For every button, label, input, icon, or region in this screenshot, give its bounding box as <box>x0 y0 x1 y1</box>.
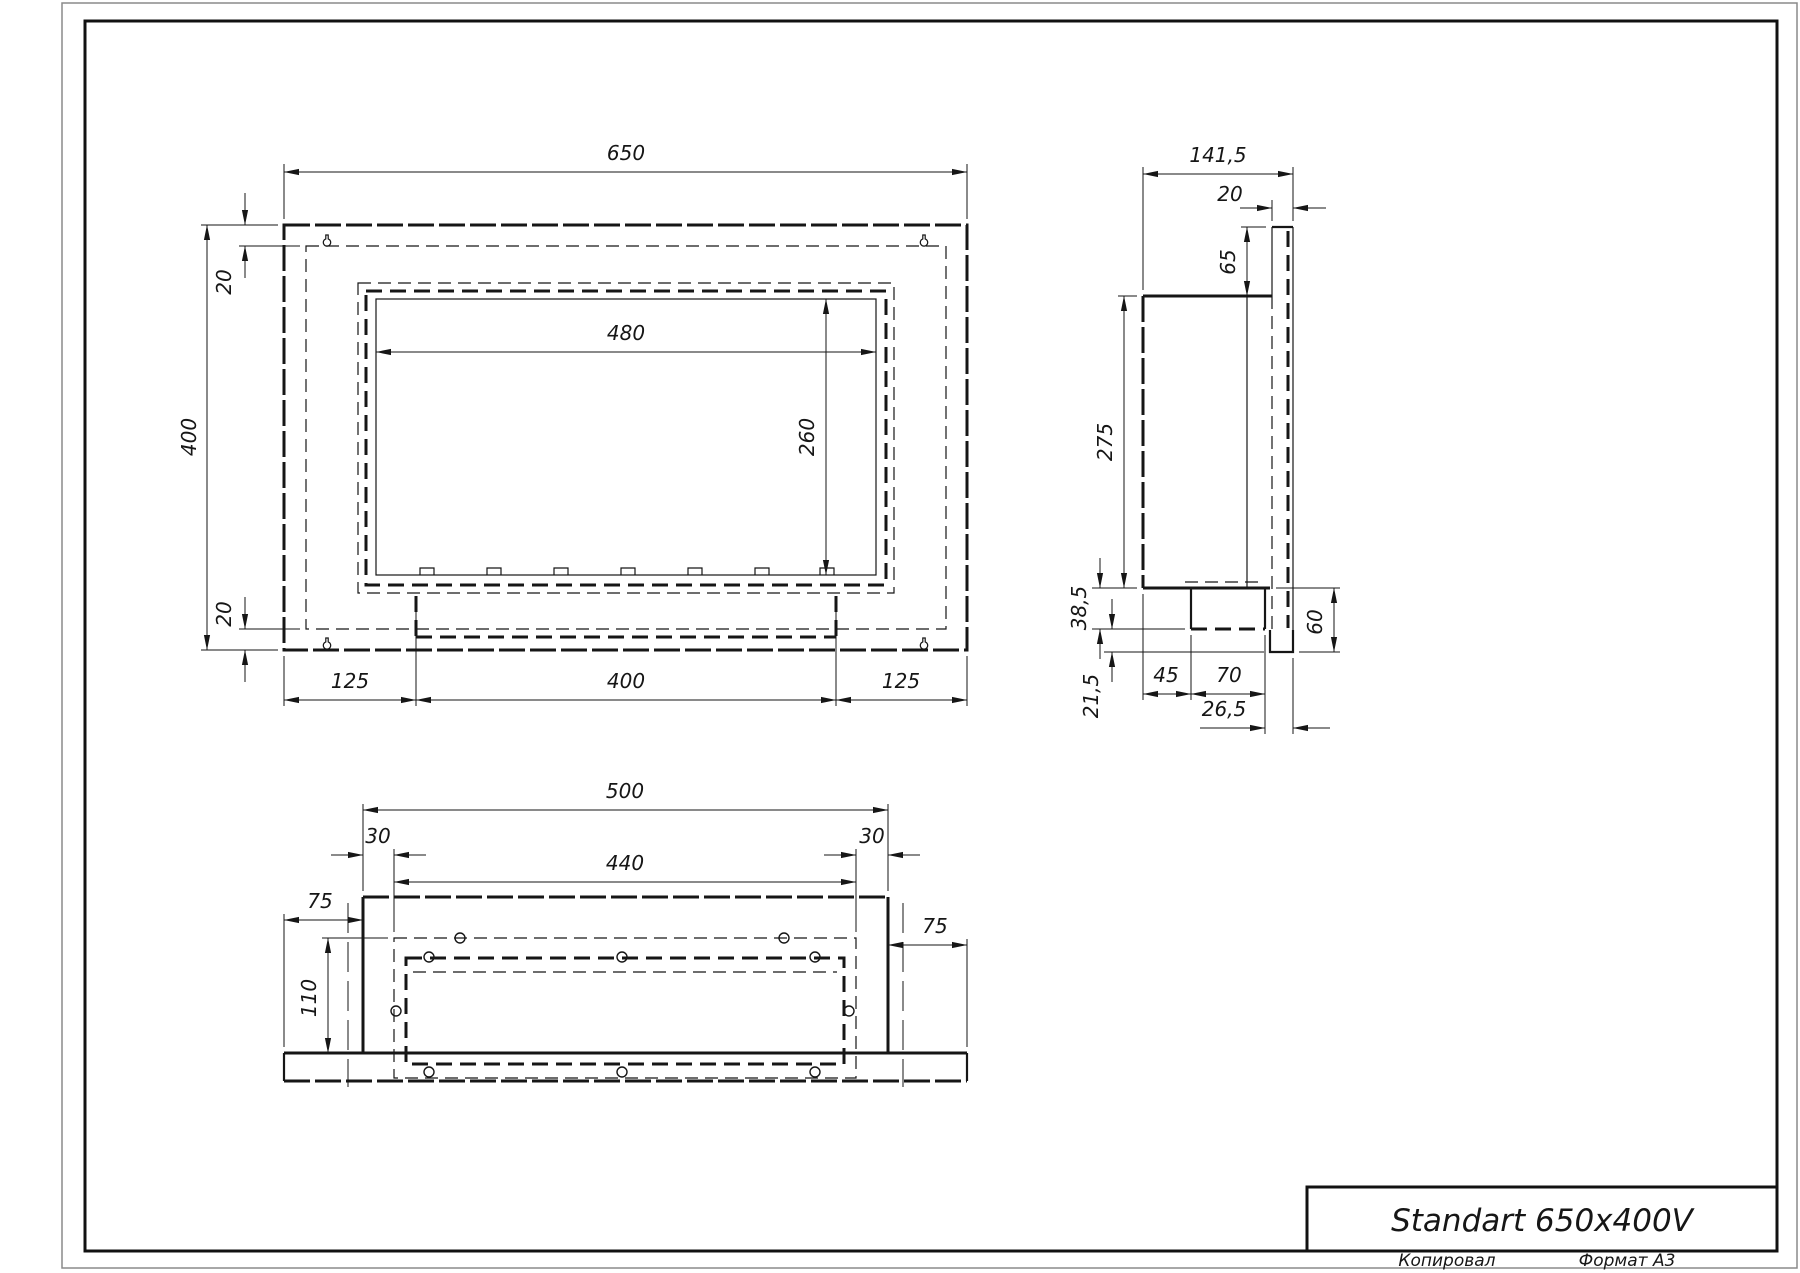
dim-front-bottom-center: 400 <box>607 669 645 693</box>
drawing-frame <box>62 3 1797 1268</box>
dim-side-foot-width: 70 <box>1216 663 1241 687</box>
dim-front-height: 400 <box>177 418 201 456</box>
front-view: 650 400 20 20 480 260 <box>177 141 967 706</box>
dim-side-drop-upper: 38,5 <box>1067 586 1091 631</box>
dim-bottom-depth: 110 <box>297 979 321 1017</box>
dim-bottom-flange-right: 75 <box>922 914 947 938</box>
technical-drawing: 650 400 20 20 480 260 <box>0 0 1800 1273</box>
dim-side-depth-total: 141,5 <box>1189 143 1246 167</box>
dim-side-drop-lower: 21,5 <box>1079 674 1103 719</box>
side-view-dimensions: 141,5 20 65 275 38,5 21 <box>1067 143 1340 734</box>
dim-side-foot-to-edge: 26,5 <box>1202 697 1247 721</box>
mounting-holes <box>391 933 854 1077</box>
format-label: Формат А3 <box>1579 1251 1676 1271</box>
dim-front-opening-width: 480 <box>607 321 645 345</box>
keyhole-hanger-icon <box>323 235 927 649</box>
dim-side-foot-offset-left: 45 <box>1153 663 1178 687</box>
drawing-title: Standart 650x400V <box>1391 1203 1696 1239</box>
bottom-view-dimensions: 500 30 440 30 75 75 110 <box>284 779 967 1053</box>
bottom-view: 500 30 440 30 75 75 110 <box>284 779 967 1087</box>
dim-bottom-housing-width: 500 <box>606 779 644 803</box>
dim-side-flange-depth: 20 <box>1217 182 1242 206</box>
dim-front-top-offset: 20 <box>212 269 236 294</box>
dim-front-bottom-left: 125 <box>331 669 369 693</box>
dim-front-opening-height: 260 <box>795 418 819 456</box>
copied-by-label: Копировал <box>1398 1251 1495 1271</box>
dim-side-body-height: 275 <box>1093 423 1117 461</box>
drawing-sheet: 650 400 20 20 480 260 <box>0 0 1800 1273</box>
dim-bottom-inset-right: 30 <box>859 824 884 848</box>
dim-front-bottom-right: 125 <box>882 669 920 693</box>
dim-front-width: 650 <box>607 141 645 165</box>
dim-side-flange-above: 65 <box>1216 249 1240 274</box>
dim-front-bottom-offset: 20 <box>212 601 236 626</box>
dim-bottom-flange-left: 75 <box>307 889 332 913</box>
dim-side-flange-below: 60 <box>1303 609 1327 634</box>
dim-bottom-tray-width: 440 <box>606 851 644 875</box>
side-view: 141,5 20 65 275 38,5 21 <box>1067 143 1340 734</box>
title-block: Standart 650x400V Копировал Формат А3 <box>1307 1187 1777 1271</box>
dim-bottom-inset-left: 30 <box>365 824 390 848</box>
burner-notches <box>420 568 834 575</box>
